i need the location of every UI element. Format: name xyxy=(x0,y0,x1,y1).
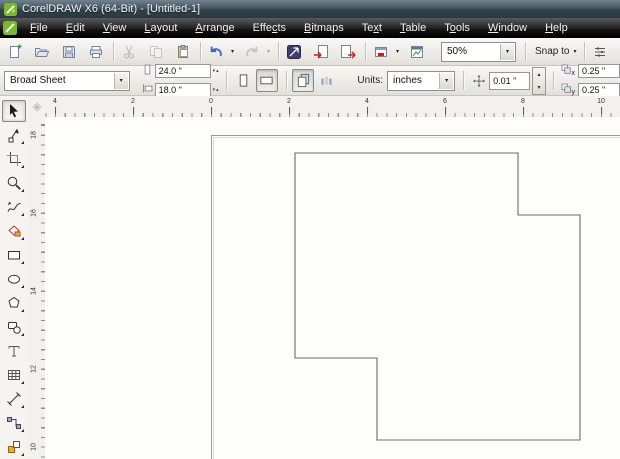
toolbar-separator xyxy=(278,42,279,61)
duplicate-y-field[interactable]: 0.25 " xyxy=(578,83,620,97)
toolbar-separator xyxy=(584,42,585,61)
flyout-indicator[interactable] xyxy=(21,285,24,288)
h-ruler-label: 10 xyxy=(597,98,605,105)
duplicate-x-field[interactable]: 0.25 " xyxy=(578,64,620,78)
menu-arrange[interactable]: Arrange xyxy=(186,20,243,36)
menu-table[interactable]: Table xyxy=(391,20,435,36)
menu-layout[interactable]: Layout xyxy=(135,20,186,36)
blend-tool[interactable] xyxy=(2,436,26,458)
ruler-origin-icon xyxy=(31,101,43,113)
h-ruler-label: 6 xyxy=(443,98,447,105)
h-ruler-label: 0 xyxy=(209,98,213,105)
zoom-level-combobox[interactable]: 50%▾ xyxy=(441,42,516,62)
toolbar-separator xyxy=(113,42,114,61)
export-button[interactable] xyxy=(337,41,359,63)
cut-button[interactable] xyxy=(118,41,140,63)
page-width-spinner[interactable]: ▾▴ xyxy=(213,69,220,74)
title-bar: CorelDRAW X6 (64-Bit) - [Untitled-1] xyxy=(0,0,620,18)
drawn-shape[interactable] xyxy=(295,153,580,440)
units-combobox[interactable]: inches ▾ xyxy=(387,71,455,91)
menu-effects[interactable]: Effects xyxy=(244,20,295,36)
menu-help[interactable]: Help xyxy=(536,20,577,36)
standard-toolbar: ▾▾▾50%▾Snap to▾ xyxy=(0,38,620,66)
pick-tool[interactable] xyxy=(2,100,26,122)
landscape-button[interactable] xyxy=(256,69,277,92)
snap-to-button[interactable]: Snap to xyxy=(530,43,574,60)
units-value: inches xyxy=(393,75,422,86)
flyout-indicator[interactable] xyxy=(21,213,24,216)
welcome-screen-button[interactable] xyxy=(406,41,428,63)
flyout-indicator[interactable] xyxy=(21,453,24,456)
toolbar-separator xyxy=(525,42,526,61)
nudge-spinner[interactable]: ▴▾ xyxy=(532,67,545,95)
flyout-indicator[interactable] xyxy=(21,405,24,408)
smart-fill-tool[interactable] xyxy=(2,220,26,242)
flyout-indicator[interactable] xyxy=(21,261,24,264)
shape-tool[interactable] xyxy=(2,124,26,146)
page-width-field[interactable]: 24.0 " xyxy=(155,64,211,78)
coreldraw-app-icon xyxy=(4,3,17,16)
units-label: Units: xyxy=(357,75,383,86)
flyout-indicator[interactable] xyxy=(21,381,24,384)
dimension-tool[interactable] xyxy=(2,388,26,410)
crop-tool[interactable] xyxy=(2,148,26,170)
v-ruler-label: 18 xyxy=(31,129,38,141)
save-button[interactable] xyxy=(58,41,80,63)
chevron-down-icon[interactable]: ▾ xyxy=(114,73,128,89)
copy-button[interactable] xyxy=(145,41,167,63)
redo-button[interactable] xyxy=(241,41,263,63)
vertical-ruler[interactable]: 1816141210 xyxy=(28,117,46,459)
page-height-spinner[interactable]: ▾▴ xyxy=(213,88,220,93)
chevron-down-icon[interactable]: ▾ xyxy=(439,73,453,89)
duplicate-x-sub-label: x xyxy=(572,70,576,77)
menu-text[interactable]: Text xyxy=(353,20,391,36)
freehand-tool[interactable] xyxy=(2,196,26,218)
v-ruler-label: 16 xyxy=(31,207,38,219)
coreldraw-window: CorelDRAW X6 (64-Bit) - [Untitled-1] Fil… xyxy=(0,0,620,459)
menu-file[interactable]: File xyxy=(21,20,57,36)
window-title: CorelDRAW X6 (64-Bit) - [Untitled-1] xyxy=(22,3,200,15)
document-icon xyxy=(3,21,17,35)
flyout-indicator[interactable] xyxy=(21,141,24,144)
nudge-distance-field[interactable]: 0.01 " xyxy=(489,72,530,90)
snap-to-dropdown[interactable]: ▾ xyxy=(570,48,579,55)
drawing-canvas[interactable] xyxy=(45,117,620,459)
all-pages-button[interactable] xyxy=(292,69,313,92)
horizontal-ruler[interactable]: 420246810 xyxy=(45,96,620,118)
flyout-indicator[interactable] xyxy=(21,165,24,168)
nudge-offset-icon xyxy=(472,74,486,88)
toolbox xyxy=(0,96,29,459)
zoom-level-value: 50% xyxy=(447,46,467,57)
current-page-button[interactable] xyxy=(316,69,337,92)
undo-dropdown[interactable]: ▾ xyxy=(228,48,237,55)
import-button[interactable] xyxy=(310,41,332,63)
duplicate-y-sub-label: y xyxy=(572,89,576,96)
h-ruler-label: 2 xyxy=(287,98,291,105)
polygon-tool[interactable] xyxy=(2,292,26,314)
h-ruler-label: 2 xyxy=(131,98,135,105)
flyout-indicator[interactable] xyxy=(21,189,24,192)
undo-button[interactable] xyxy=(205,41,227,63)
portrait-button[interactable] xyxy=(233,69,254,92)
zoom-tool[interactable] xyxy=(2,172,26,194)
flyout-indicator[interactable] xyxy=(21,309,24,312)
menu-edit[interactable]: Edit xyxy=(57,20,94,36)
h-ruler-label: 4 xyxy=(365,98,369,105)
flyout-indicator[interactable] xyxy=(21,333,24,336)
property-bar: Broad Sheet ▾ 24.0 " ▾▴ 18.0 " ▾▴ xyxy=(0,66,620,96)
menu-tools[interactable]: Tools xyxy=(435,20,479,36)
flyout-indicator[interactable] xyxy=(21,429,24,432)
v-ruler-label: 10 xyxy=(31,441,38,453)
chevron-down-icon[interactable]: ▾ xyxy=(500,44,514,60)
options-button[interactable] xyxy=(589,41,611,63)
paste-button[interactable] xyxy=(172,41,194,63)
ellipse-tool[interactable] xyxy=(2,268,26,290)
table-tool[interactable] xyxy=(2,364,26,386)
page-size-preset-value: Broad Sheet xyxy=(10,75,66,86)
menu-window[interactable]: Window xyxy=(479,20,536,36)
rectangle-tool[interactable] xyxy=(2,244,26,266)
menu-view[interactable]: View xyxy=(94,20,136,36)
app-launcher-button[interactable] xyxy=(370,41,392,63)
open-button[interactable] xyxy=(31,41,53,63)
print-button[interactable] xyxy=(85,41,107,63)
duplicate-x-icon xyxy=(561,62,572,80)
new-button[interactable] xyxy=(4,41,26,63)
app-launcher-dropdown[interactable]: ▾ xyxy=(393,48,402,55)
page-width-icon xyxy=(142,62,153,80)
v-ruler-label: 14 xyxy=(31,285,38,297)
redo-dropdown[interactable]: ▾ xyxy=(264,48,273,55)
h-ruler-label: 8 xyxy=(521,98,525,105)
menu-bitmaps[interactable]: Bitmaps xyxy=(295,20,353,36)
menu-bar: FileEditViewLayoutArrangeEffectsBitmapsT… xyxy=(0,18,620,38)
basic-shapes-tool[interactable] xyxy=(2,316,26,338)
h-ruler-label: 4 xyxy=(53,98,57,105)
menu-items: FileEditViewLayoutArrangeEffectsBitmapsT… xyxy=(21,20,577,36)
toolbar-separator xyxy=(200,42,201,61)
toolbar-separator xyxy=(365,42,366,61)
search-content-button[interactable] xyxy=(283,41,305,63)
text-tool[interactable] xyxy=(2,340,26,362)
connector-tool[interactable] xyxy=(2,412,26,434)
ruler-origin[interactable] xyxy=(28,96,46,118)
page-height-field[interactable]: 18.0 " xyxy=(155,83,211,97)
v-ruler-label: 12 xyxy=(31,363,38,375)
flyout-indicator[interactable] xyxy=(21,237,24,240)
page-size-preset-combobox[interactable]: Broad Sheet ▾ xyxy=(4,71,130,91)
